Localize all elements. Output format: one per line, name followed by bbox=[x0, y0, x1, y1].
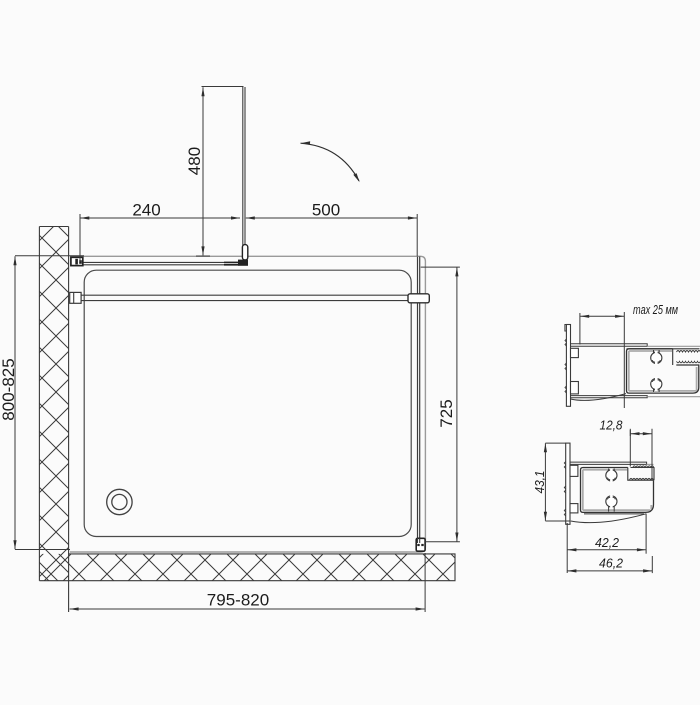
svg-text:max 25 мм: max 25 мм bbox=[633, 302, 678, 317]
svg-text:43,1: 43,1 bbox=[532, 471, 547, 494]
svg-text:46,2: 46,2 bbox=[599, 556, 624, 571]
svg-text:725: 725 bbox=[437, 399, 456, 427]
svg-text:795-820: 795-820 bbox=[207, 591, 269, 610]
svg-text:240: 240 bbox=[132, 201, 160, 220]
svg-text:480: 480 bbox=[185, 147, 204, 175]
svg-text:800-825: 800-825 bbox=[0, 358, 18, 420]
svg-text:500: 500 bbox=[312, 201, 340, 220]
svg-text:12,8: 12,8 bbox=[600, 418, 624, 433]
svg-text:42,2: 42,2 bbox=[595, 535, 620, 550]
